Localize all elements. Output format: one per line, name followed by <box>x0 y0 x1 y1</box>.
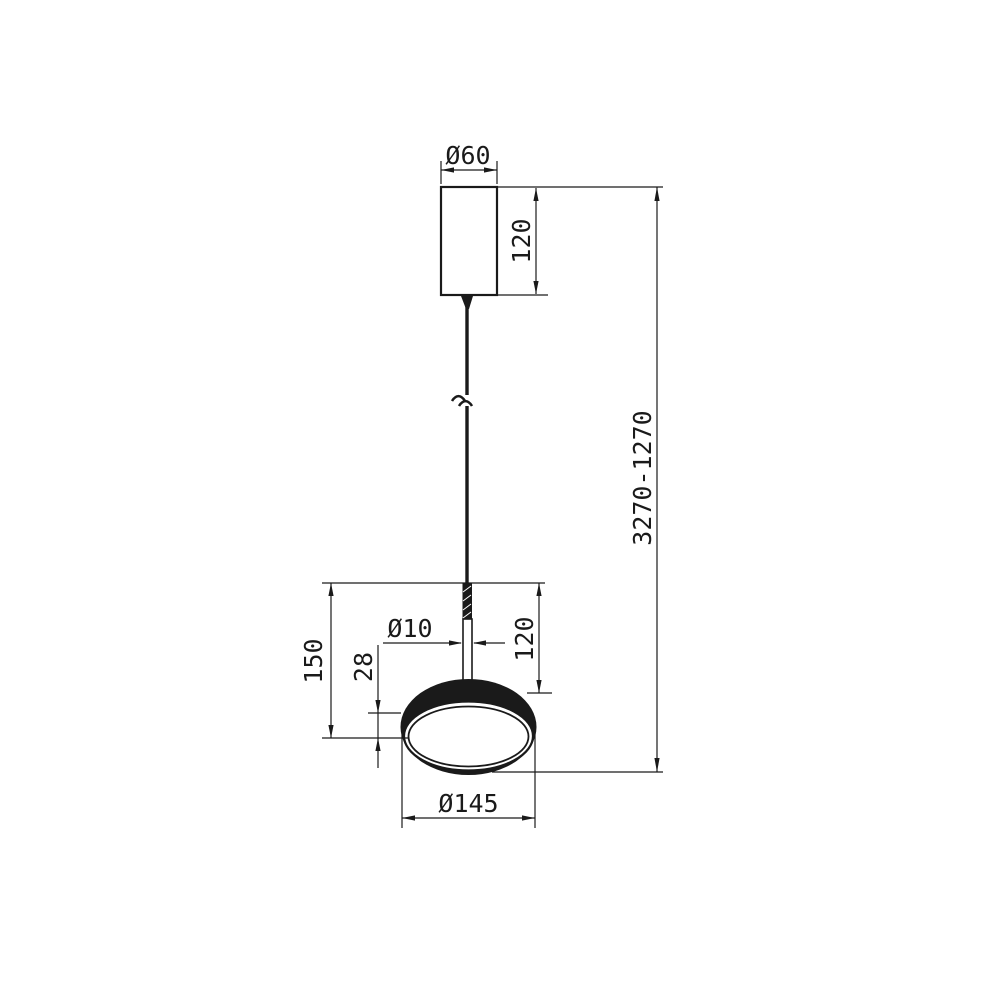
dim-canopy-diameter: Ø60 <box>441 141 497 184</box>
arrowhead-up <box>654 187 659 201</box>
drawing-canvas: Ø60 120 3270-1270 150 28 Ø10 <box>0 0 1000 1000</box>
suspension-cable <box>452 296 479 682</box>
dim-stem-height: 120 <box>510 583 552 693</box>
cable-stem <box>463 619 472 682</box>
cable-break-icon <box>452 395 479 406</box>
arrowhead-up <box>375 738 380 751</box>
cable-gripper <box>463 583 473 619</box>
arrowhead-up <box>533 188 538 201</box>
dim-suspension-height: 3270-1270 <box>628 187 660 772</box>
dim-label-head-height: 150 <box>299 638 328 683</box>
dim-rim-thickness: 28 <box>349 645 401 768</box>
arrowhead-left <box>402 815 415 820</box>
arrowhead-right <box>449 640 462 645</box>
dim-label-shade-diameter: Ø145 <box>438 789 498 818</box>
dim-cable-diameter: Ø10 <box>383 614 505 646</box>
dim-label-stem-height: 120 <box>510 616 539 661</box>
arrowhead-down <box>654 758 659 772</box>
lamp-shade <box>401 679 537 775</box>
dim-label-canopy-diameter: Ø60 <box>445 141 490 170</box>
pendant-lamp-dimension-drawing: Ø60 120 3270-1270 150 28 Ø10 <box>0 0 1000 1000</box>
arrowhead-up <box>536 583 541 596</box>
dim-label-suspension-height: 3270-1270 <box>628 410 657 545</box>
arrowhead-down <box>536 680 541 693</box>
dim-label-canopy-height: 120 <box>507 218 536 263</box>
arrowhead-down <box>328 725 333 738</box>
dim-label-rim-thickness: 28 <box>349 652 378 682</box>
dim-label-cable-diameter: Ø10 <box>387 614 432 643</box>
dim-shade-diameter: Ø145 <box>402 789 535 821</box>
arrowhead-down <box>375 700 380 713</box>
canopy-outline <box>441 187 497 295</box>
arrowhead-left <box>473 640 486 645</box>
shade-inner-ring <box>404 702 533 771</box>
dim-canopy-height: 120 <box>498 188 548 295</box>
arrowhead-up <box>328 583 333 596</box>
canopy <box>441 187 497 295</box>
arrowhead-down <box>533 281 538 294</box>
arrowhead-right <box>522 815 535 820</box>
